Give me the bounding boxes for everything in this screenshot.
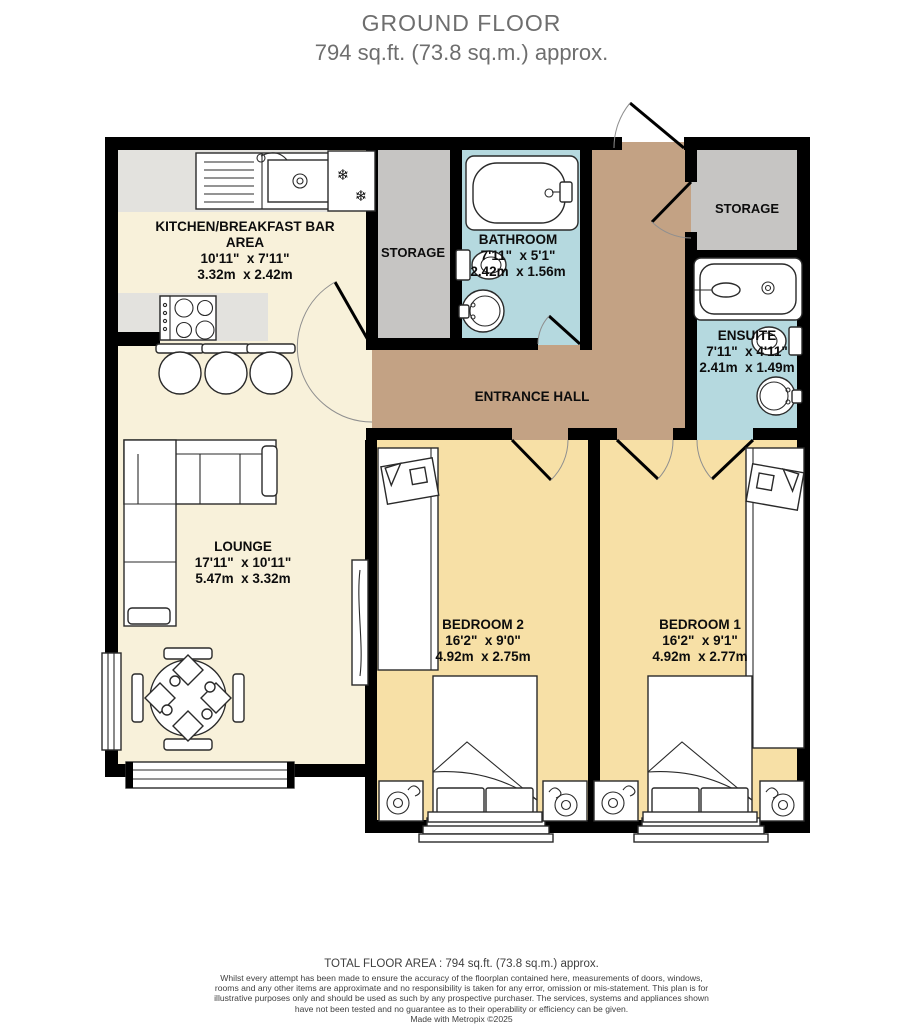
freezer: ❄ ❄	[328, 151, 375, 211]
bedroom1-bed	[643, 676, 757, 822]
metropix-credit: Made with Metropix ©2025	[0, 1014, 923, 1024]
wall-hall-storage-a	[685, 150, 697, 182]
ensuite-dims-metric: 2.41m x 1.49m	[699, 360, 794, 375]
bedroom1-lamp-right	[760, 781, 804, 821]
wall-kitchen-stub	[105, 332, 160, 346]
total-floor-area: TOTAL FLOOR AREA : 794 sq.ft. (73.8 sq.m…	[0, 958, 923, 970]
snowflake-icon: ❄	[337, 167, 350, 184]
radiator	[352, 560, 368, 685]
bedroom2-dims-metric: 4.92m x 2.75m	[435, 649, 530, 664]
ensuite-label: ENSUITE	[718, 328, 777, 343]
lounge-label: LOUNGE	[214, 539, 272, 554]
wall-bedrooms-top-d	[753, 428, 810, 440]
storage-right-label: STORAGE	[715, 201, 779, 216]
bedroom2-bed	[428, 676, 542, 822]
entrance-hall-label: ENTRANCE HALL	[475, 389, 590, 404]
wall-bottom-c	[760, 820, 810, 833]
bedroom1-dims-imperial: 16'2" x 9'1"	[662, 633, 738, 648]
bedroom1-label: BEDROOM 1	[659, 617, 741, 632]
sink-unit	[196, 153, 344, 209]
bedroom2-wardrobe	[378, 448, 439, 670]
lounge-side-window	[102, 653, 121, 750]
wall-lounge-bottom-b	[292, 764, 377, 777]
floorplan-svg: ❄ ❄	[0, 0, 923, 1024]
wall-top-right	[684, 137, 810, 150]
shower	[694, 258, 802, 320]
bathroom-dims-metric: 2.42m x 1.56m	[470, 264, 565, 279]
front-door	[614, 103, 684, 148]
storage-left-floor	[372, 142, 456, 345]
kitchen-label2: AREA	[226, 235, 265, 250]
snowflake-icon: ❄	[355, 188, 368, 205]
bedroom2-lamp-left	[379, 781, 423, 821]
wall-bottom-b	[545, 820, 642, 833]
bathroom-dims-imperial: 7'11" x 5'1"	[481, 248, 556, 263]
wall-hall-top-b	[580, 338, 592, 350]
wall-top-left	[105, 137, 622, 150]
wall-between-bedrooms	[588, 440, 600, 820]
bedroom2-lamp-right	[543, 781, 587, 821]
bar-stools	[156, 344, 295, 394]
wall-left-upper	[105, 137, 118, 655]
wall-lounge-bottom-a	[105, 764, 128, 777]
kitchen-label: KITCHEN/BREAKFAST BAR	[155, 219, 335, 234]
wall-hall-top-a	[366, 338, 538, 350]
lounge-dims-metric: 5.47m x 3.32m	[195, 571, 290, 586]
wall-bathroom-hall	[580, 150, 592, 345]
wall-bedrooms-top-b	[568, 428, 617, 440]
kitchen-dims-metric: 3.32m x 2.42m	[197, 267, 292, 282]
lounge-dims-imperial: 17'11" x 10'11"	[195, 555, 292, 570]
bedroom1-lamp-left	[594, 781, 638, 821]
disclaimer-text: Whilst every attempt has been made to en…	[209, 973, 714, 1014]
kitchen-dims-imperial: 10'11" x 7'11"	[200, 251, 289, 266]
bath	[466, 156, 578, 230]
bedroom1-dims-metric: 4.92m x 2.77m	[652, 649, 747, 664]
bedroom1-wardrobe	[746, 448, 804, 748]
bedroom2-dims-imperial: 16'2" x 9'0"	[445, 633, 521, 648]
bathroom-label: BATHROOM	[479, 232, 558, 247]
wall-bedrooms-top-c	[673, 428, 697, 440]
footer: TOTAL FLOOR AREA : 794 sq.ft. (73.8 sq.m…	[0, 958, 923, 1024]
lounge-bottom-window	[126, 762, 294, 788]
wall-bedrooms-top-a	[366, 428, 512, 440]
hall-upper-floor	[586, 142, 691, 345]
bedroom2-label: BEDROOM 2	[442, 617, 524, 632]
ensuite-dims-imperial: 7'11" x 4'11"	[706, 344, 788, 359]
storage-left-label: STORAGE	[381, 245, 445, 260]
hob	[160, 296, 216, 340]
